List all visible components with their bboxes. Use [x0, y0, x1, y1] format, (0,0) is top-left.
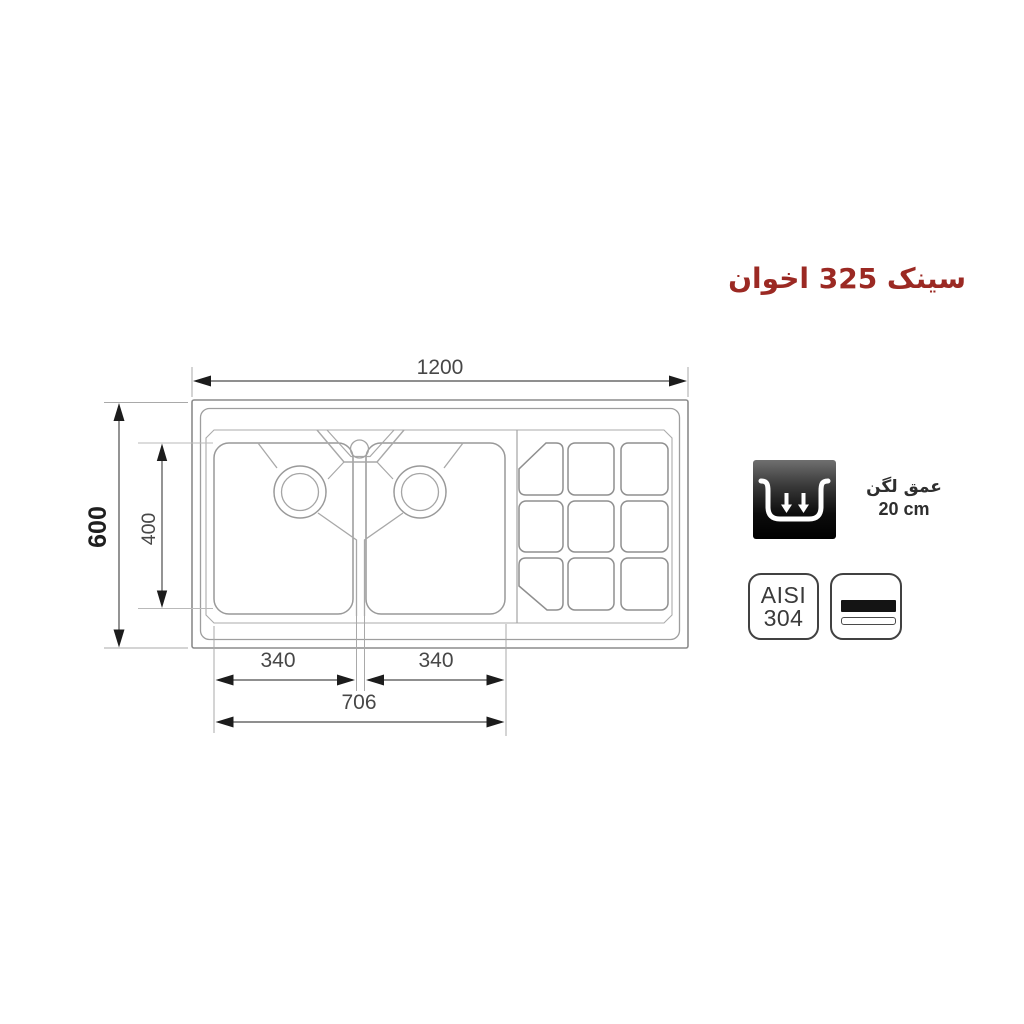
sheet-solid-bar-icon [841, 600, 896, 612]
left-bowl [214, 443, 353, 614]
dim-left-bowl-width: 340 [216, 649, 356, 686]
dim-label-706: 706 [341, 691, 376, 714]
bowl-depth-icon [753, 460, 836, 539]
dim-overall-depth: 600 [84, 403, 188, 649]
dim-overall-width: 1200 [192, 356, 688, 397]
dim-label-340-left: 340 [260, 649, 295, 672]
dim-right-bowl-width: 340 [366, 649, 505, 686]
faucet-hole [351, 440, 369, 458]
dim-bowl-zone-depth: 400 [138, 443, 213, 609]
sheet-thickness-badge [830, 573, 902, 640]
dim-bottom-extensions [214, 616, 506, 736]
steel-grade-badge: AISI 304 [748, 573, 819, 640]
steel-grade-line1: AISI [761, 584, 806, 607]
bowl-depth-label: عمق لگن 20 cm [850, 477, 958, 521]
bowl-cross-section-icon [753, 460, 836, 539]
steel-grade-line2: 304 [764, 607, 804, 630]
down-arrows-icon [781, 493, 809, 513]
dim-label-340-right: 340 [418, 649, 453, 672]
right-bowl [366, 443, 505, 614]
dim-label-600: 600 [84, 506, 112, 548]
drainboard-grid [519, 443, 668, 610]
dim-label-1200: 1200 [417, 356, 464, 379]
sheet-outline-bar-icon [841, 617, 896, 625]
bowl-depth-value: 20 cm [850, 498, 958, 521]
sink-bowls [214, 430, 505, 616]
bowl-depth-label-fa: عمق لگن [850, 477, 958, 498]
product-diagram-page: سینک 325 اخوان [0, 0, 1024, 1024]
dim-label-400: 400 [138, 513, 160, 546]
dim-bowls-span: 706 [216, 691, 505, 728]
